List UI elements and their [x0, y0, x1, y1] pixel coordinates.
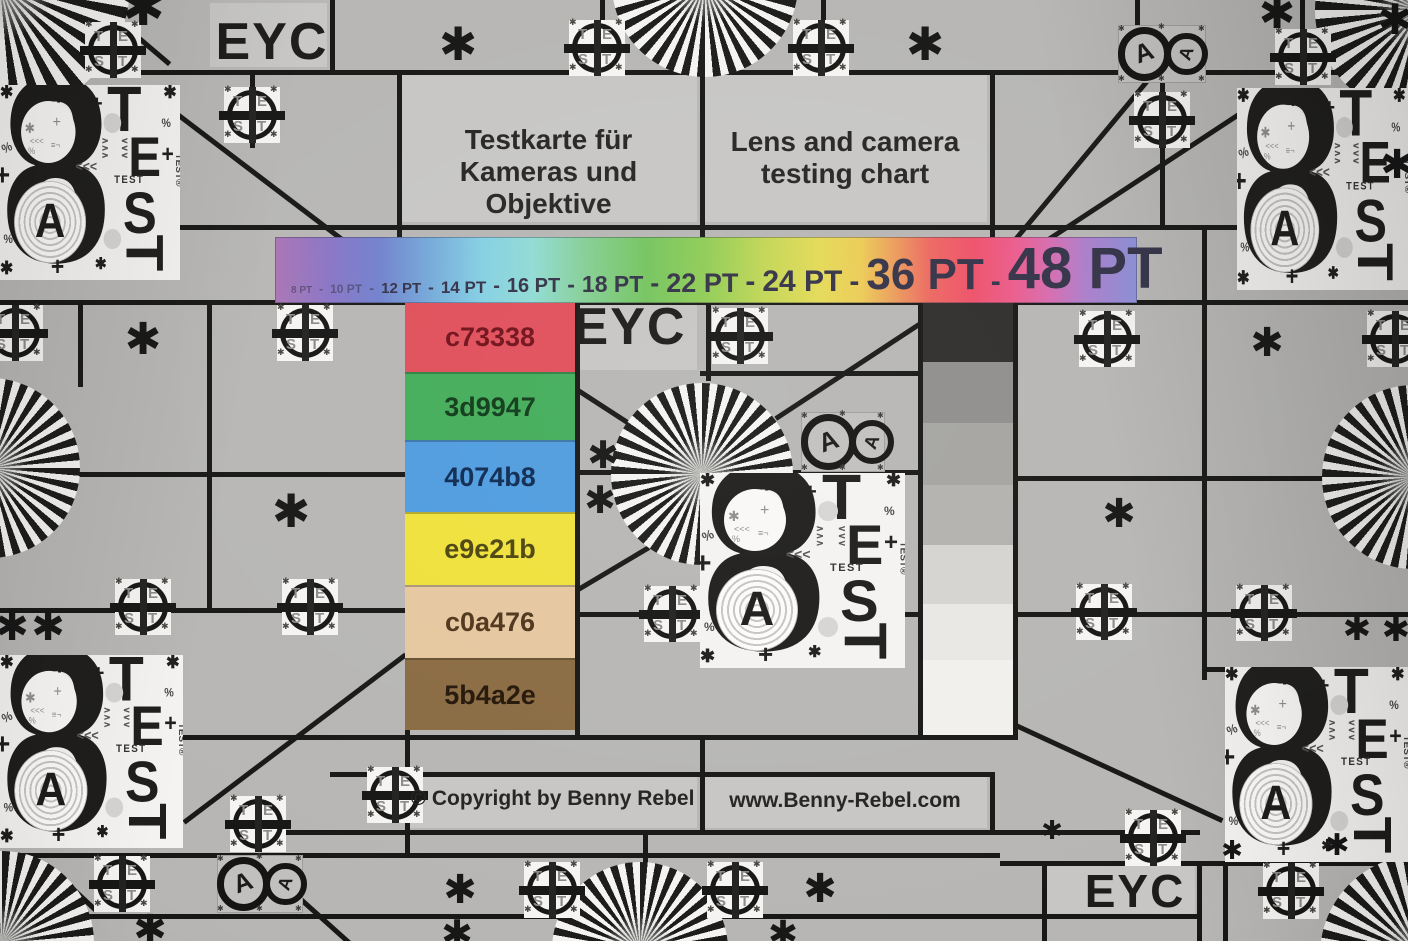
font-size-label: 18 PT — [582, 274, 643, 295]
marker-corner-star-icon: ✱ — [1321, 73, 1329, 82]
double-circle-8a-chip: AA✱✱✱✱✱✱ — [1118, 25, 1206, 83]
marker-letter: T — [263, 828, 272, 843]
marker-letter: T — [118, 54, 127, 69]
plus-mark: + — [1286, 88, 1301, 115]
marker-letter: S — [1376, 343, 1386, 358]
arrows-up-mark: ∧∧∧ — [100, 137, 109, 159]
marker-letter: T — [1308, 61, 1317, 76]
chevrons-mark: <<< — [77, 728, 99, 742]
marker-crosshair-v-icon — [249, 87, 256, 143]
marker-crosshair-v-icon — [1288, 863, 1295, 919]
marker-corner-star-icon: ✱ — [85, 21, 93, 30]
marker-letter: E — [1269, 592, 1279, 607]
marker-letter: T — [602, 52, 611, 67]
marker-letter: T — [1085, 591, 1094, 606]
test-crosshair-marker: TEST✱✱✱✱ — [569, 20, 625, 76]
siemens-star-center — [0, 428, 30, 507]
marker-corner-star-icon: ✱ — [839, 64, 847, 73]
marker-crosshair-v-icon — [818, 20, 825, 76]
marker-letter: T — [1376, 318, 1385, 333]
arrows-up-mark: ∧∧∧ — [814, 525, 824, 547]
title-german-line1: Testkarte für — [400, 124, 697, 156]
marker-letter: S — [1143, 124, 1153, 139]
marker-crosshair-v-icon — [1104, 311, 1111, 367]
letter-a: A — [1270, 205, 1299, 255]
marker-letter: S — [533, 894, 543, 909]
marker-corner-star-icon: ✱ — [1282, 629, 1290, 638]
grid-line-v — [1197, 861, 1202, 941]
marker-letter: S — [0, 337, 6, 352]
test-crosshair-marker: TEST✱✱✱✱ — [712, 308, 768, 364]
speckle-glyph: ≡¬ — [51, 141, 60, 150]
double-circle-8a-chip: AA✱✱✱✱✱✱ — [801, 412, 885, 472]
speckle-glyph: <<< — [1255, 719, 1269, 728]
marker-letter: T — [721, 315, 730, 330]
speckle-glyph: ≡¬ — [52, 710, 61, 719]
arrows-down-mark: ∨∨∨ — [121, 706, 130, 728]
eyc-label: EYC — [574, 301, 687, 353]
grid-line-v — [207, 300, 212, 608]
marker-corner-star-icon: ✱ — [33, 349, 41, 358]
grid-line-v — [700, 735, 705, 830]
marker-corner-star-icon: ✱ — [224, 131, 232, 140]
test-letter-t2: T — [120, 803, 174, 839]
test-crosshair-marker: TEST✱✱✱✱ — [277, 305, 333, 361]
marker-corner-star-icon: ✱ — [1134, 136, 1142, 145]
font-size-label: 12 PT — [381, 282, 421, 296]
chip-corner-dot-icon: ✱ — [256, 905, 263, 913]
grid-line-h — [330, 772, 990, 777]
marker-letter: S — [239, 828, 249, 843]
corner-asterisk-icon: ✱ — [886, 473, 901, 489]
test-side-label: TEST® — [1401, 736, 1408, 769]
asterisk-mark-icon: ✱ — [1102, 494, 1136, 534]
marker-letter: T — [291, 586, 300, 601]
marker-corner-star-icon: ✱ — [1122, 583, 1130, 592]
marker-letter: T — [1134, 817, 1143, 832]
speckle-glyph: ✱ — [728, 509, 740, 523]
test-crosshair-marker: TEST✱✱✱✱ — [1236, 585, 1292, 641]
speckle-detail-circle: ✱+<<<%≡¬ — [1257, 105, 1309, 169]
test-crosshair-marker: TEST✱✱✱✱ — [793, 20, 849, 76]
asterisk-mark-icon: ✱ — [1377, 0, 1408, 41]
marker-corner-star-icon: ✱ — [615, 19, 623, 28]
corner-asterisk-icon: ✱ — [163, 85, 176, 101]
marker-corner-star-icon: ✱ — [367, 811, 375, 820]
chip-letter-a: A — [859, 432, 884, 452]
percent-mark: % — [164, 687, 174, 699]
marker-corner-star-icon: ✱ — [1263, 862, 1271, 871]
percent-mark: % — [4, 801, 14, 813]
plus-mark: + — [1237, 167, 1247, 198]
chip-corner-dot-icon: ✱ — [217, 855, 224, 863]
color-patch: 4074b8 — [405, 440, 575, 512]
asterisk-mark-icon: ✱ — [803, 869, 837, 909]
marker-letter: S — [802, 52, 812, 67]
marker-corner-star-icon: ✱ — [569, 19, 577, 28]
test-crosshair-marker: TEST✱✱✱✱ — [0, 305, 43, 361]
chip-corner-dot-icon: ✱ — [1118, 75, 1125, 83]
marker-letter: E — [263, 803, 273, 818]
plus-mark: + — [1286, 262, 1299, 289]
marker-letter: T — [233, 94, 242, 109]
test-crosshair-marker: TEST✱✱✱✱ — [1367, 311, 1408, 367]
marker-letter: E — [257, 94, 267, 109]
arrows-up-mark: ∧∧∧ — [1333, 142, 1341, 165]
resolution-8a-pattern: 8✱+<<<%≡¬ATESTTESTTEST®<<<∧∧∧∨∨∨+++++%%%… — [0, 85, 180, 280]
marker-letter: T — [124, 586, 133, 601]
marker-letter: E — [602, 27, 612, 42]
marker-corner-star-icon: ✱ — [230, 840, 238, 849]
speckle-glyph: <<< — [734, 525, 750, 534]
grid-line-h — [1018, 476, 1330, 481]
gray-dot-icon — [818, 617, 838, 637]
marker-corner-star-icon: ✱ — [85, 66, 93, 75]
grid-line-v — [1042, 861, 1047, 941]
color-patch: c73338 — [405, 303, 575, 372]
plus-mark: + — [758, 473, 776, 499]
grid-line-v — [330, 0, 335, 70]
test-small-label: TEST — [114, 175, 144, 186]
marker-corner-star-icon: ✱ — [753, 861, 761, 870]
marker-crosshair-v-icon — [302, 305, 309, 361]
gray-dot-icon — [104, 113, 122, 133]
speckle-detail-circle: ✱+<<<%≡¬ — [1246, 683, 1301, 745]
marker-crosshair-v-icon — [549, 862, 556, 918]
marker-corner-star-icon: ✱ — [1076, 583, 1084, 592]
title-english-line1: Lens and camera — [703, 126, 987, 158]
arrows-down-mark: ∨∨∨ — [119, 137, 128, 159]
font-size-label: 16 PT — [507, 277, 560, 295]
grayscale-step — [923, 604, 1013, 660]
test-small-label: TEST — [1346, 181, 1375, 192]
marker-letter: T — [1296, 895, 1305, 910]
letter-a: A — [35, 767, 66, 815]
marker-corner-star-icon: ✱ — [793, 64, 801, 73]
gray-dot-icon — [105, 798, 123, 818]
test-side-label: TEST® — [897, 542, 905, 575]
marker-corner-star-icon: ✱ — [1236, 629, 1244, 638]
marker-corner-star-icon: ✱ — [277, 304, 285, 313]
chip-letter-a: A — [273, 874, 297, 893]
marker-letter: T — [802, 27, 811, 42]
arrows-down-mark: ∨∨∨ — [836, 525, 846, 547]
marker-corner-star-icon: ✱ — [1125, 355, 1133, 364]
marker-corner-star-icon: ✱ — [1309, 907, 1317, 916]
marker-corner-star-icon: ✱ — [323, 304, 331, 313]
eyc-label: EYC — [216, 16, 329, 68]
marker-corner-star-icon: ✱ — [690, 630, 698, 639]
marker-letter: S — [291, 611, 301, 626]
marker-letter: T — [239, 803, 248, 818]
corner-asterisk-icon: ✱ — [166, 655, 179, 671]
marker-corner-star-icon: ✱ — [1309, 862, 1317, 871]
siemens-star-pattern — [0, 378, 80, 558]
marker-letter: S — [94, 54, 104, 69]
corner-asterisk-icon: ✱ — [700, 473, 715, 489]
marker-crosshair-v-icon — [12, 305, 19, 361]
color-patch-hex-label: c73338 — [445, 322, 535, 353]
percent-mark: % — [162, 117, 171, 129]
corner-asterisk-icon: ✱ — [0, 827, 13, 845]
siemens-star-pattern — [0, 851, 94, 941]
corner-asterisk-icon: ✱ — [96, 825, 108, 841]
marker-corner-star-icon: ✱ — [712, 307, 720, 316]
chip-circle-small: A — [264, 863, 307, 906]
eyc-label: EYC — [1085, 868, 1186, 914]
arrows-up-mark: ∧∧∧ — [102, 706, 111, 728]
color-patch: 5b4a2e — [405, 658, 575, 730]
marker-corner-star-icon: ✱ — [524, 861, 532, 870]
chip-letter-a: A — [1131, 37, 1158, 71]
title-english-line2: testing chart — [703, 158, 987, 190]
gray-dot-icon — [1330, 695, 1348, 715]
speckle-glyph: + — [1279, 697, 1287, 713]
plus-mark: + — [164, 712, 177, 736]
marker-crosshair-v-icon — [1101, 584, 1108, 640]
siemens-star-center — [0, 903, 42, 941]
resolution-8a-pattern: 8✱+<<<%≡¬ATESTTESTTEST®<<<∧∧∧∨∨∨+++++%%%… — [1237, 88, 1408, 290]
percent-mark: % — [884, 505, 895, 517]
speckle-glyph: ≡¬ — [758, 529, 769, 538]
marker-corner-star-icon: ✱ — [1134, 91, 1142, 100]
marker-corner-star-icon: ✱ — [282, 623, 290, 632]
chip-corner-dot-icon: ✱ — [801, 464, 808, 472]
marker-corner-star-icon: ✱ — [524, 906, 532, 915]
resolution-8a-inner: 8✱+<<<%≡¬ATESTTESTTEST®<<<∧∧∧∨∨∨+++++%%%… — [0, 85, 180, 280]
asterisk-mark-icon: ✱ — [1343, 612, 1372, 646]
marker-letter: T — [745, 340, 754, 355]
test-crosshair-marker: TEST✱✱✱✱ — [224, 87, 280, 143]
marker-corner-star-icon: ✱ — [839, 19, 847, 28]
font-size-label: 22 PT — [666, 271, 738, 295]
marker-crosshair-v-icon — [594, 20, 601, 76]
siemens-star-pattern — [612, 0, 798, 77]
resolution-8a-pattern: 8✱+<<<%≡¬ATESTTESTTEST®<<<∧∧∧∨∨∨+++++%%%… — [700, 473, 905, 668]
marker-corner-star-icon: ✱ — [1076, 628, 1084, 637]
marker-letter: S — [1134, 842, 1144, 857]
gray-dot-icon — [104, 229, 122, 249]
corner-asterisk-icon: ✱ — [1328, 266, 1339, 283]
color-patch-hex-label: c0a476 — [445, 607, 535, 638]
marker-letter: T — [716, 869, 725, 884]
speckle-glyph: ✱ — [25, 121, 35, 135]
marker-letter: E — [557, 869, 567, 884]
marker-corner-star-icon: ✱ — [1171, 854, 1179, 863]
chip-corner-dot-icon: ✱ — [801, 412, 808, 420]
camera-test-chart-photo: Testkarte für Kameras und Objektive Lens… — [0, 0, 1408, 941]
font-size-separator: - — [319, 284, 323, 295]
grid-line-v — [575, 300, 580, 735]
speckle-glyph: % — [29, 716, 36, 725]
test-small-label: TEST — [116, 744, 146, 755]
chip-letter-a: A — [230, 867, 257, 901]
plus-mark: + — [91, 93, 102, 115]
marker-corner-star-icon: ✱ — [276, 840, 284, 849]
plus-mark: + — [51, 253, 64, 279]
font-size-separator: - — [650, 271, 659, 295]
plus-mark: + — [51, 85, 66, 111]
asterisk-mark-icon: ✱ — [443, 870, 477, 910]
siemens-star-center — [601, 911, 678, 941]
font-size-separator: - — [428, 280, 434, 295]
color-patch-column: c733383d99474074b8e9e21bc0a4765b4a2e — [405, 303, 575, 730]
grid-line-h — [700, 371, 918, 376]
marker-letter: E — [20, 312, 30, 327]
speckle-glyph: ✱ — [1250, 703, 1260, 717]
marker-letter: T — [94, 29, 103, 44]
letter-a: A — [740, 586, 775, 634]
marker-corner-star-icon: ✱ — [1180, 136, 1188, 145]
plus-mark: + — [0, 161, 10, 191]
plus-mark: + — [1277, 835, 1291, 861]
marker-letter: T — [257, 119, 266, 134]
marker-corner-star-icon: ✱ — [758, 352, 766, 361]
marker-letter: S — [124, 611, 134, 626]
marker-crosshair-v-icon — [307, 579, 314, 635]
marker-letter: T — [315, 611, 324, 626]
marker-crosshair-v-icon — [1150, 810, 1157, 866]
speckle-glyph: + — [53, 115, 61, 131]
gray-dot-icon — [105, 683, 123, 703]
font-size-separator: - — [567, 274, 575, 295]
chip-corner-dot-icon: ✱ — [839, 464, 846, 472]
copyright-text: © Copyright by Benny Rebel — [408, 787, 697, 811]
marker-letter: S — [233, 119, 243, 134]
speckle-glyph: ≡¬ — [1277, 723, 1286, 732]
marker-letter: T — [0, 312, 5, 327]
marker-letter: S — [1284, 61, 1294, 76]
marker-letter: E — [677, 593, 687, 608]
marker-letter: S — [1088, 343, 1098, 358]
chip-circle-small: A — [850, 420, 894, 464]
marker-corner-star-icon: ✱ — [33, 304, 41, 313]
marker-corner-star-icon: ✱ — [140, 855, 148, 864]
font-size-label: 14 PT — [441, 280, 486, 295]
test-letter-t2: T — [118, 235, 171, 272]
marker-corner-star-icon: ✱ — [793, 19, 801, 28]
marker-corner-star-icon: ✱ — [328, 623, 336, 632]
corner-asterisk-icon: ✱ — [1237, 88, 1250, 105]
marker-letter: T — [1158, 842, 1167, 857]
marker-letter: T — [127, 888, 136, 903]
marker-corner-star-icon: ✱ — [115, 623, 123, 632]
speckle-glyph: <<< — [30, 706, 44, 715]
color-patch-hex-label: 5b4a2e — [444, 680, 536, 711]
speckle-glyph: % — [28, 147, 35, 156]
marker-corner-star-icon: ✱ — [1079, 355, 1087, 364]
grayscale-step — [923, 660, 1013, 735]
chip-circle-large: A — [1118, 27, 1171, 80]
test-crosshair-marker: TEST✱✱✱✱ — [1125, 810, 1181, 866]
marker-letter: E — [1112, 318, 1122, 333]
marker-corner-star-icon: ✱ — [570, 906, 578, 915]
marker-corner-star-icon: ✱ — [1275, 73, 1283, 82]
chevrons-mark: <<< — [786, 547, 811, 561]
chip-corner-dot-icon: ✱ — [1118, 25, 1125, 33]
resolution-8a-pattern: 8✱+<<<%≡¬ATESTTESTTEST®<<<∧∧∧∨∨∨+++++%%%… — [0, 655, 183, 848]
marker-letter: T — [1112, 343, 1121, 358]
marker-corner-star-icon: ✱ — [1171, 809, 1179, 818]
font-size-label: 8 PT — [291, 286, 312, 295]
color-patch: c0a476 — [405, 585, 575, 658]
font-size-separator: - — [745, 268, 755, 295]
speckle-glyph: <<< — [30, 137, 44, 146]
marker-crosshair-v-icon — [1261, 585, 1268, 641]
chip-corner-dot-icon: ✱ — [1158, 23, 1165, 31]
marker-letter: E — [1400, 318, 1408, 333]
font-size-label: 36 PT — [866, 255, 983, 295]
grayscale-step — [923, 303, 1013, 362]
marker-letter: T — [310, 337, 319, 352]
font-size-separator: - — [849, 268, 859, 295]
marker-corner-star-icon: ✱ — [712, 352, 720, 361]
arrows-down-mark: ∨∨∨ — [1346, 719, 1355, 741]
chip-corner-dot-icon: ✱ — [295, 855, 302, 863]
test-side-label: TEST® — [176, 723, 183, 756]
plus-mark: + — [1324, 96, 1335, 119]
test-letter-t2: T — [1350, 243, 1400, 281]
marker-corner-star-icon: ✱ — [615, 64, 623, 73]
marker-letter: T — [740, 894, 749, 909]
corner-asterisk-icon: ✱ — [0, 655, 13, 671]
marker-letter: T — [1088, 318, 1097, 333]
asterisk-mark-icon: ✱ — [439, 21, 478, 67]
font-size-separator: - — [369, 282, 374, 296]
test-letter-t2: T — [834, 623, 894, 660]
marker-corner-star-icon: ✱ — [1180, 91, 1188, 100]
marker-letter: E — [1167, 99, 1177, 114]
website-text: www.Benny-Rebel.com — [703, 789, 987, 813]
marker-letter: T — [533, 869, 542, 884]
plus-mark: + — [93, 663, 104, 685]
marker-corner-star-icon: ✱ — [270, 131, 278, 140]
test-crosshair-marker: TEST✱✱✱✱ — [707, 862, 763, 918]
font-size-scale-bar: 8 PT-10 PT-12 PT-14 PT-16 PT-18 PT-22 PT… — [275, 237, 1137, 303]
asterisk-mark-icon: ✱ — [1382, 613, 1408, 647]
marker-corner-star-icon: ✱ — [1263, 907, 1271, 916]
marker-letter: T — [578, 27, 587, 42]
marker-corner-star-icon: ✱ — [277, 349, 285, 358]
marker-corner-star-icon: ✱ — [1321, 28, 1329, 37]
asterisk-mark-icon: ✱ — [272, 488, 311, 534]
plus-mark: + — [1225, 743, 1235, 773]
chip-circle-large: A — [801, 414, 856, 469]
marker-corner-star-icon: ✱ — [161, 623, 169, 632]
marker-corner-star-icon: ✱ — [1282, 584, 1290, 593]
marker-corner-star-icon: ✱ — [644, 585, 652, 594]
corner-asterisk-icon: ✱ — [700, 647, 715, 665]
corner-asterisk-icon: ✱ — [1237, 268, 1250, 287]
font-size-label: 48 PT — [1008, 243, 1163, 295]
asterisk-mark-icon: ✱ — [31, 607, 65, 647]
marker-corner-star-icon: ✱ — [367, 766, 375, 775]
test-crosshair-marker: TEST✱✱✱✱ — [644, 586, 700, 642]
marker-letter: E — [1158, 817, 1168, 832]
marker-letter: T — [1272, 870, 1281, 885]
marker-letter: S — [1085, 616, 1095, 631]
resolution-8a-inner: 8✱+<<<%≡¬ATESTTESTTEST®<<<∧∧∧∨∨∨+++++%%%… — [1225, 667, 1408, 862]
marker-letter: T — [148, 611, 157, 626]
speckle-glyph: + — [760, 503, 769, 519]
chip-circle-large: A — [217, 857, 270, 910]
marker-crosshair-v-icon — [1300, 29, 1307, 85]
speckle-glyph: % — [732, 535, 740, 544]
marker-corner-star-icon: ✱ — [1236, 584, 1244, 593]
marker-letter: S — [286, 337, 296, 352]
marker-letter: E — [1109, 591, 1119, 606]
marker-letter: T — [1109, 616, 1118, 631]
